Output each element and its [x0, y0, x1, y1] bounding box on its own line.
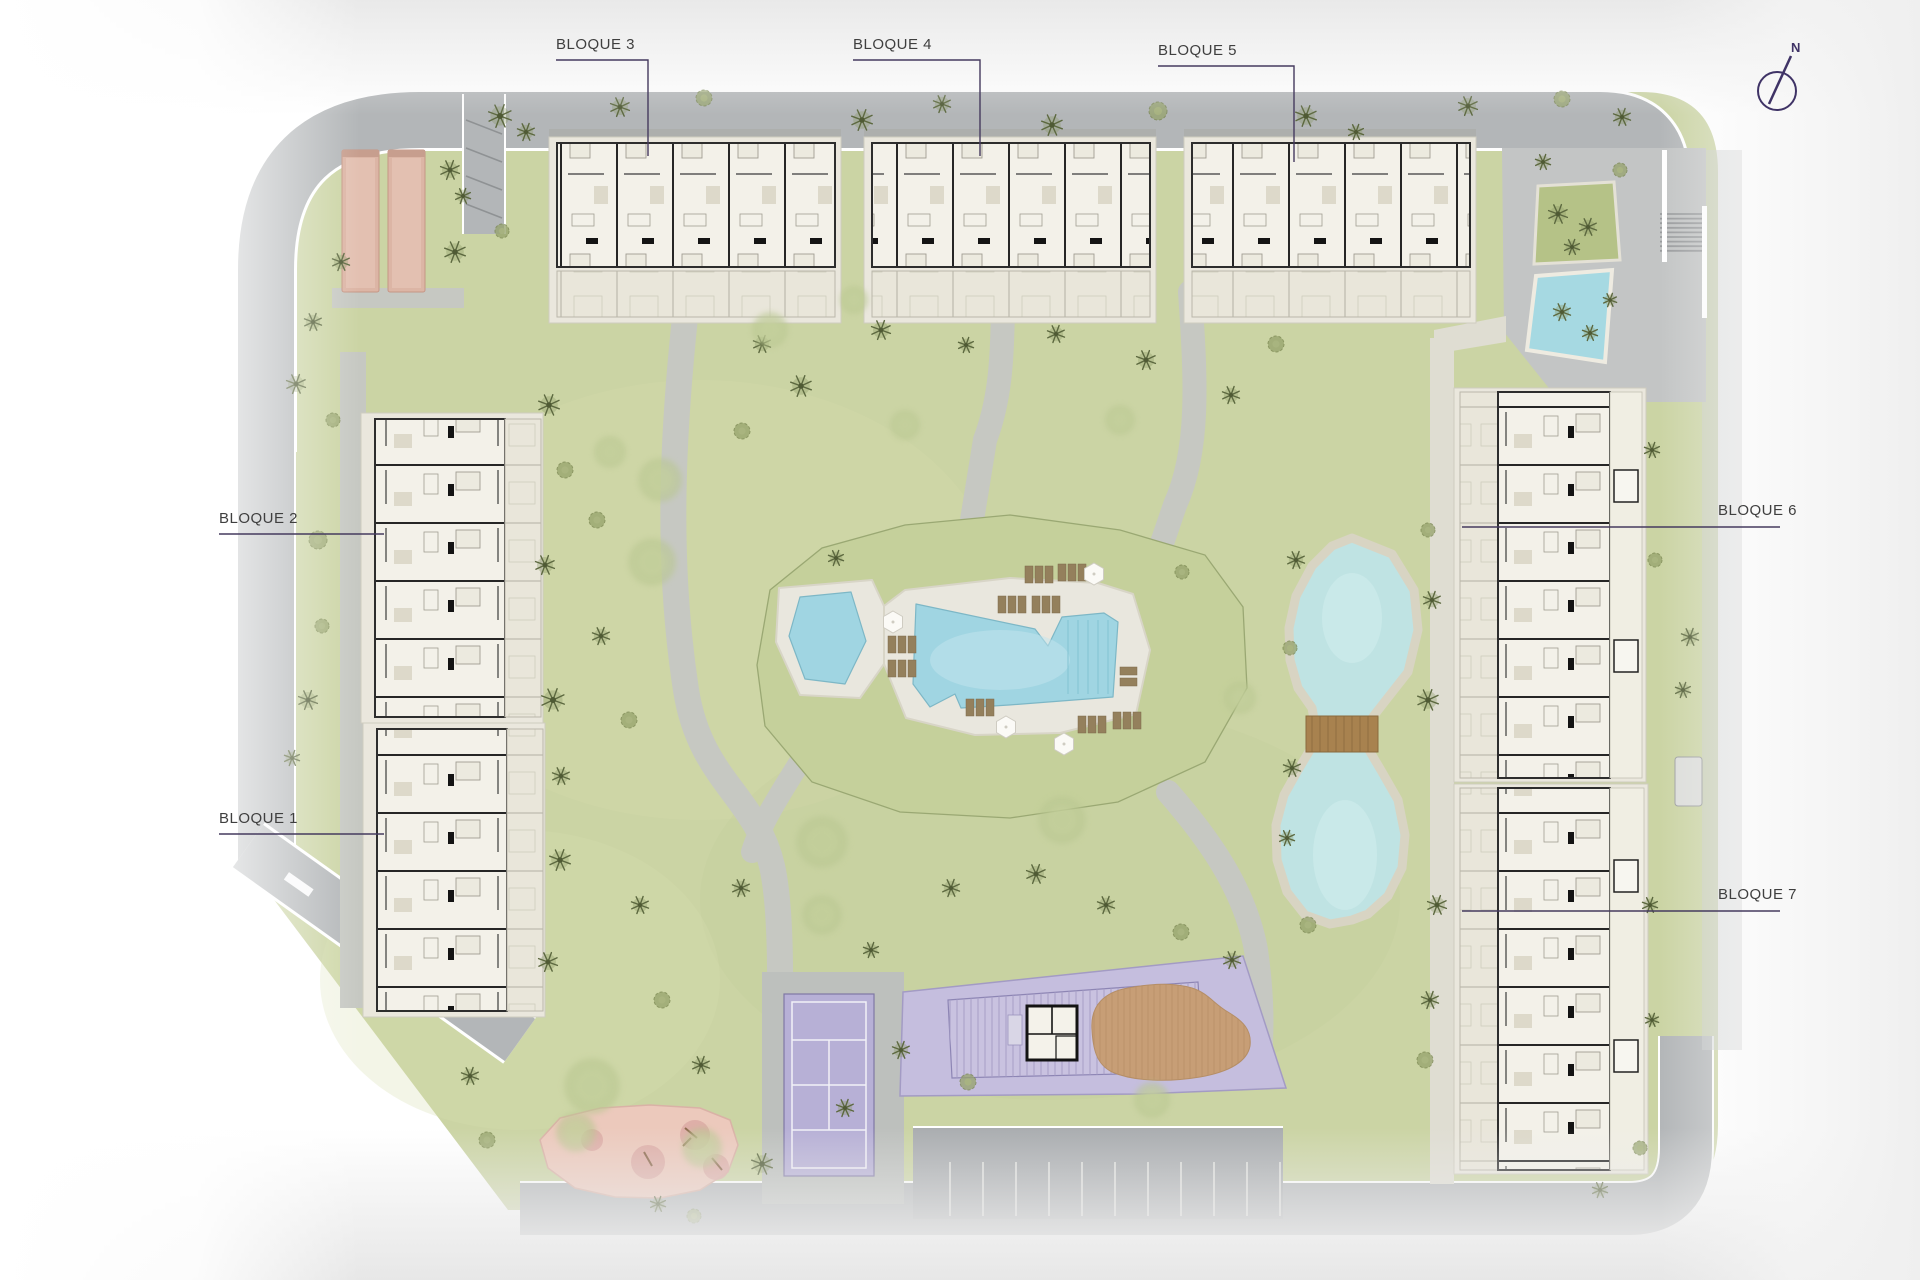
sun-lounger — [1078, 716, 1086, 733]
sun-lounger — [1088, 716, 1096, 733]
tree-bush — [1613, 163, 1627, 177]
tree-canopy — [1038, 796, 1086, 844]
corner-planter — [1534, 182, 1620, 264]
tree-canopy — [890, 410, 920, 440]
tree-bush — [1421, 523, 1435, 537]
sun-lounger — [1042, 596, 1050, 613]
sun-lounger — [1123, 712, 1131, 729]
sun-lounger — [1025, 566, 1033, 583]
sun-lounger — [1008, 596, 1016, 613]
tree-bush — [1268, 336, 1284, 352]
sun-lounger — [1045, 566, 1053, 583]
label-bloque-3[interactable]: BLOQUE 3 — [556, 36, 635, 53]
tree-bush — [495, 224, 509, 238]
lake-bridge — [1306, 716, 1378, 752]
tree-canopy — [840, 286, 868, 314]
tree-bush — [1648, 553, 1662, 567]
tree-canopy — [802, 895, 842, 935]
tree-bush — [654, 992, 670, 1008]
bloque-5-building[interactable] — [1184, 129, 1476, 323]
tree-bush — [1283, 641, 1297, 655]
label-bloque-5[interactable]: BLOQUE 5 — [1158, 42, 1237, 59]
tree-bush — [1300, 917, 1316, 933]
tree-bush — [734, 423, 750, 439]
tree-canopy — [752, 312, 788, 348]
label-bloque-4[interactable]: BLOQUE 4 — [853, 36, 932, 53]
promenade — [1430, 338, 1454, 1184]
plunge-pool[interactable] — [1527, 270, 1612, 362]
bloque-3-building[interactable] — [549, 129, 841, 323]
site-plan-svg — [0, 0, 1920, 1280]
sun-lounger — [1018, 596, 1026, 613]
tree-bush — [1175, 565, 1189, 579]
label-bloque-2[interactable]: BLOQUE 2 — [219, 510, 298, 527]
sun-lounger — [908, 660, 916, 677]
tree-bush — [1173, 924, 1189, 940]
label-bloque-1[interactable]: BLOQUE 1 — [219, 810, 298, 827]
sun-lounger — [908, 636, 916, 653]
sun-lounger — [1113, 712, 1121, 729]
sun-lounger — [888, 636, 896, 653]
tree-canopy — [638, 458, 682, 502]
bloque-6-building[interactable] — [1454, 388, 1646, 782]
tree-canopy — [796, 816, 848, 868]
sun-lounger — [1068, 564, 1076, 581]
tree-bush — [557, 462, 573, 478]
sun-lounger — [986, 699, 994, 716]
tree-bush — [960, 1074, 976, 1090]
tree-canopy — [1105, 405, 1135, 435]
tree-bush — [1417, 1052, 1433, 1068]
sun-lounger — [1120, 678, 1137, 686]
pool-house[interactable] — [1027, 1006, 1077, 1060]
tree-canopy — [1134, 1082, 1170, 1118]
sun-lounger — [976, 699, 984, 716]
north-label: N — [1791, 40, 1800, 55]
sun-lounger — [1120, 667, 1137, 675]
sun-lounger — [1058, 564, 1066, 581]
label-bloque-7[interactable]: BLOQUE 7 — [1718, 886, 1797, 903]
bloque-2-building[interactable] — [361, 413, 543, 723]
sun-lounger — [966, 699, 974, 716]
bloque-7-building[interactable] — [1454, 784, 1648, 1174]
sun-lounger — [1032, 596, 1040, 613]
tree-bush — [589, 512, 605, 528]
sun-lounger — [1035, 566, 1043, 583]
tree-bush — [621, 712, 637, 728]
bloque-4-building[interactable] — [864, 129, 1156, 323]
sun-lounger — [898, 636, 906, 653]
sun-lounger — [898, 660, 906, 677]
tree-canopy — [564, 1058, 620, 1114]
label-bloque-6[interactable]: BLOQUE 6 — [1718, 502, 1797, 519]
sun-lounger — [1052, 596, 1060, 613]
tree-canopy — [1224, 682, 1256, 714]
site-plan: BLOQUE 3 BLOQUE 4 BLOQUE 5 BLOQUE 2 BLOQ… — [0, 0, 1920, 1280]
tree-canopy — [594, 436, 626, 468]
sun-lounger — [888, 660, 896, 677]
sun-lounger — [998, 596, 1006, 613]
sun-lounger — [1133, 712, 1141, 729]
tree-canopy — [628, 538, 676, 586]
bloque-1-building[interactable] — [363, 723, 545, 1017]
sun-lounger — [1098, 716, 1106, 733]
